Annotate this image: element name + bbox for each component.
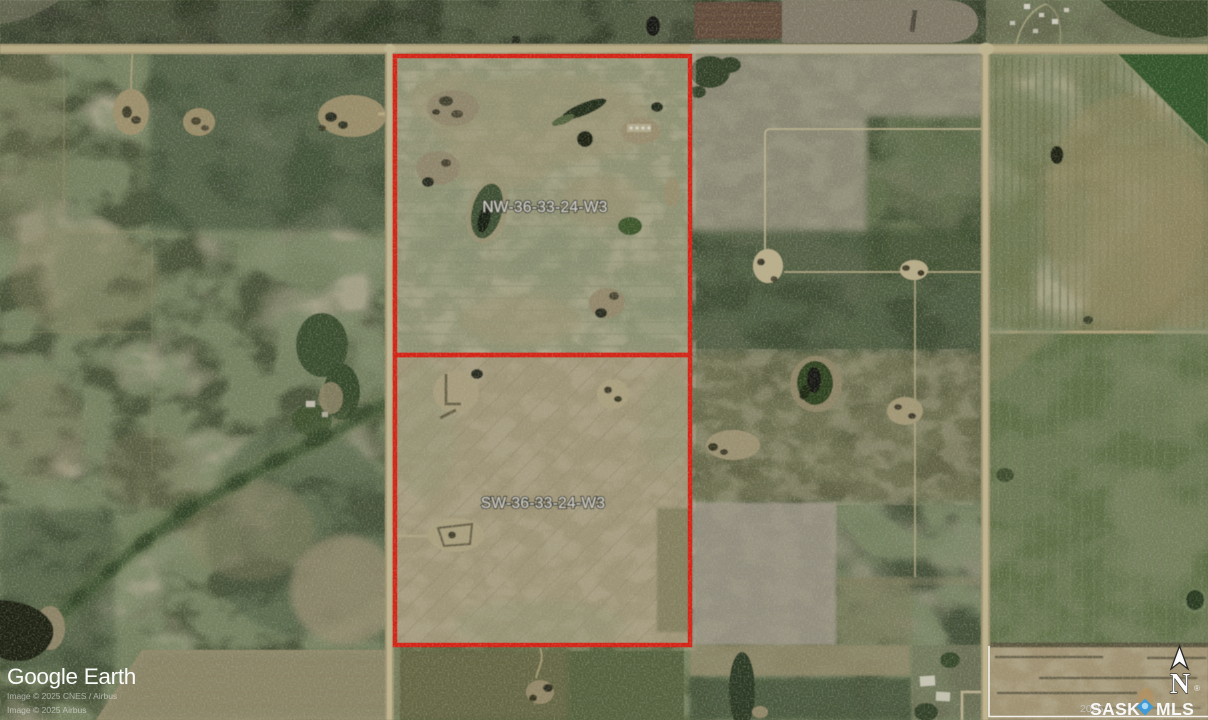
svg-text:®: ®	[1194, 684, 1200, 693]
svg-text:Image © 2025 CNES / Airbus: Image © 2025 CNES / Airbus	[7, 691, 117, 701]
svg-text:N: N	[1170, 669, 1190, 700]
svg-text:Google Earth: Google Earth	[7, 664, 136, 689]
svg-text:MLS: MLS	[1156, 699, 1194, 719]
svg-text:Image © 2025 Airbus: Image © 2025 Airbus	[7, 705, 87, 715]
svg-text:SASK: SASK	[1090, 699, 1140, 719]
